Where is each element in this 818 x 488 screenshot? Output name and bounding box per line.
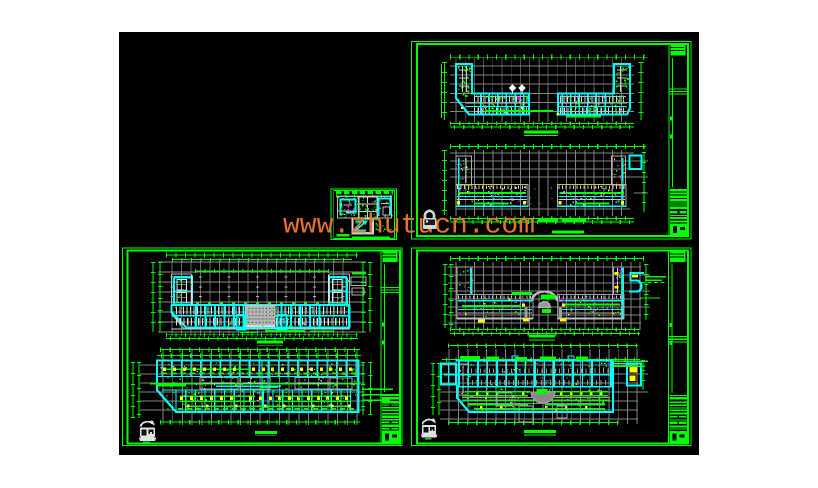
svg-text:www.zhutucn.com: www.zhutucn.com <box>283 211 535 242</box>
